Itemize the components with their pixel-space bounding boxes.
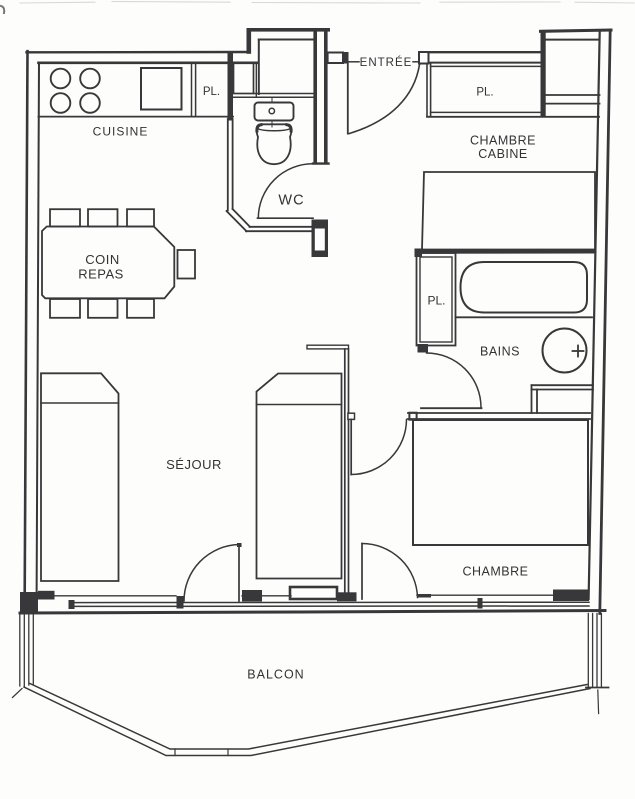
svg-text:CUISINE: CUISINE [93,124,149,138]
svg-text:ENTRÉE: ENTRÉE [360,56,413,69]
svg-text:CABINE: CABINE [478,147,528,161]
svg-text:REPAS: REPAS [78,267,124,282]
svg-text:SÉJOUR: SÉJOUR [166,457,222,472]
svg-text:BAINS: BAINS [480,345,520,359]
svg-text:CHAMBRE: CHAMBRE [470,134,536,148]
svg-text:BALCON: BALCON [247,668,304,682]
svg-text:PL.: PL. [476,87,493,99]
svg-text:PL.: PL. [427,293,445,307]
svg-text:COIN: COIN [85,252,120,267]
svg-text:PL.: PL. [203,86,220,98]
svg-text:WC: WC [278,193,304,209]
svg-text:CHAMBRE: CHAMBRE [462,565,528,579]
